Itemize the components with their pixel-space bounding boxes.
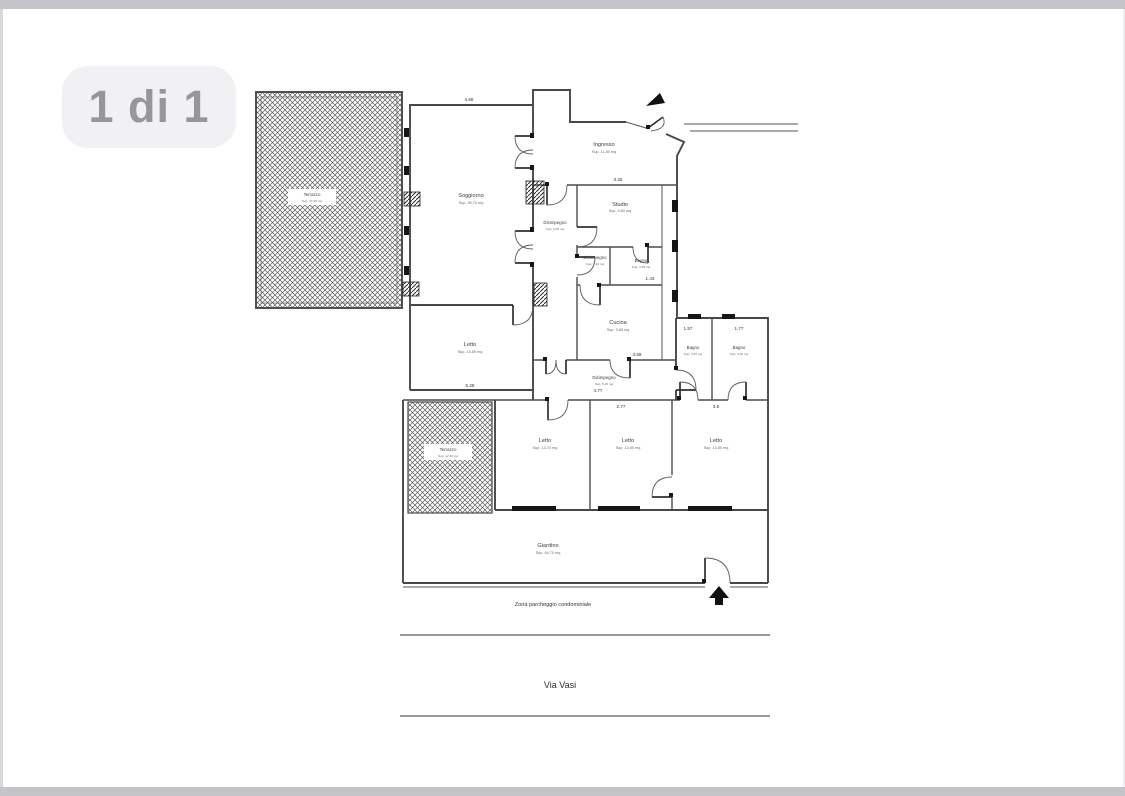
dimension-label: 4.68 (465, 97, 474, 102)
room-label-disimpegno-2: Disimpegno (583, 255, 607, 260)
room-area-cucina: Sup. 9.85 mq (607, 328, 630, 332)
street-name-label: Via Vasi (544, 680, 576, 690)
room-area-letto-4: Sup. 13.80 mq (704, 446, 729, 450)
room-label-disimpegno-1: Disimpegno (543, 220, 567, 225)
dimension-label: 1.43 (646, 276, 655, 281)
room-label-terrazzo-2: Terrazzo (440, 447, 457, 452)
room-label-bagno-1: Bagno (635, 258, 648, 263)
dimension-label: 5.28 (466, 383, 475, 388)
room-label-terrazzo-1: Terrazzo (304, 192, 321, 197)
door-symbols (513, 117, 746, 583)
street-lines (400, 635, 770, 716)
dimension-label: 1.57 (684, 326, 693, 331)
entrance-arrow-bottom-icon (709, 586, 729, 605)
room-label-letto-3: Letto (622, 438, 634, 444)
floorplan-image[interactable]: Terrazzo Sup. 37.90 mq Soggiorno Sup. 35… (0, 0, 1125, 796)
room-area-bagno-2: Sup. 3.45 mq (684, 352, 703, 356)
dimension-label: 3.25 (614, 177, 623, 182)
room-label-studio: Studio (612, 202, 628, 208)
dimension-label: 3.58 (633, 352, 642, 357)
pillar-hatch (526, 181, 544, 204)
room-area-disimpegno-2: Sup. 1.40 mq (586, 262, 605, 266)
dimension-label: 3.5 (713, 404, 720, 409)
room-label-ingresso: Ingresso (593, 142, 614, 148)
room-label-bagno-2: Bagno (687, 345, 700, 350)
room-area-disimpegno-1: Sup. 3.05 mq (546, 227, 565, 231)
dimension-label: 1.77 (735, 326, 744, 331)
room-area-letto-3: Sup. 12.60 mq (616, 446, 641, 450)
room-label-bagno-3: Bagno (733, 345, 746, 350)
room-label-cucina: Cucina (609, 320, 627, 326)
room-label-letto-2: Letto (539, 438, 551, 444)
room-label-disimpegno-3: Disimpegno (592, 375, 616, 380)
room-area-giardino: Sup. 64.70 mq (536, 551, 561, 555)
dimension-label: 4.77 (594, 388, 603, 393)
room-area-ingresso: Sup. 11.80 mq (592, 150, 616, 154)
room-label-letto-4: Letto (710, 438, 722, 444)
image-viewer-page: 1 di 1 (0, 0, 1125, 796)
pillar-hatch (534, 283, 547, 306)
pillar-hatch (404, 192, 420, 206)
dimension-label: 2.77 (617, 404, 626, 409)
pillar-hatch (403, 282, 419, 296)
room-label-letto-1: Letto (464, 342, 476, 348)
floorplan-svg: Terrazzo Sup. 37.90 mq Soggiorno Sup. 35… (0, 0, 1125, 796)
room-area-soggiorno: Sup. 35.70 mq (459, 201, 484, 205)
room-area-terrazzo-1: Sup. 37.90 mq (302, 199, 322, 203)
room-area-terrazzo-2: Sup. 12.30 mq (438, 454, 458, 458)
entrance-arrow-top-icon (646, 93, 665, 106)
room-area-bagno-3: Sup. 4.20 mq (730, 352, 749, 356)
room-label-soggiorno: Soggiorno (458, 193, 484, 199)
parking-zone-caption: Zona parcheggio condominiale (515, 602, 592, 608)
room-area-bagno-1: Sup. 4.95 mq (632, 265, 651, 269)
room-area-letto-1: Sup. 15.80 mq (458, 350, 483, 354)
room-label-giardino: Giardino (537, 543, 558, 549)
room-area-disimpegno-3: Sup. 5.45 mq (595, 382, 614, 386)
room-area-studio: Sup. 9.80 mq (609, 209, 632, 213)
room-area-letto-2: Sup. 13.70 mq (533, 446, 558, 450)
